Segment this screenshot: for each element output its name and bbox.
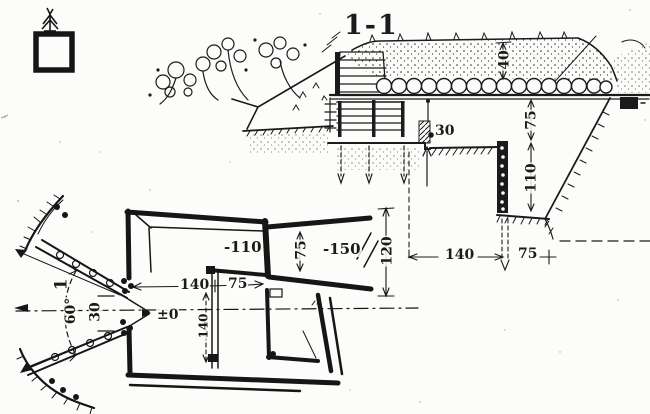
scanned-fortification-drawing: 1-1 40 75 110 30 140 75 -110 -150 75 120… (0, 0, 650, 414)
trench (497, 98, 650, 241)
section-title: 1-1 (343, 12, 400, 39)
entry-level-label: ±0 (156, 308, 179, 322)
overall-width-label: 120 (381, 235, 395, 266)
dim-cover-40-label: 40 (498, 49, 512, 70)
tree-icon (42, 8, 58, 33)
dim-height-75-label: 75 (525, 109, 539, 130)
room-level-label: -110 (223, 240, 263, 255)
passage-width-label: 75 (295, 239, 309, 260)
passage-level-label: -150 (322, 242, 362, 257)
room-depth-label: 140 (198, 312, 210, 339)
legend-square-symbol (36, 8, 72, 70)
drawing-canvas (0, 0, 650, 414)
dim-berm-75-label: 75 (517, 247, 538, 261)
section-mark-label: 1 (53, 278, 70, 292)
dim-floor-140-label: 140 (444, 248, 475, 262)
floor-and-berm (328, 121, 499, 170)
bushes (149, 37, 306, 104)
log-roof-row (377, 79, 613, 94)
revetment-wall (325, 98, 430, 137)
dim-depth-110-label: 110 (525, 162, 539, 193)
embrasure-angle-label: 60° (64, 297, 78, 325)
entry-width-label: 75 (227, 277, 248, 291)
dim-berm-30-label: 30 (434, 124, 455, 138)
section-view (149, 32, 650, 270)
trench-curves (17, 195, 94, 414)
embrasure-throat-label: 30 (89, 301, 103, 322)
entry-length-label: 140 (179, 278, 210, 292)
